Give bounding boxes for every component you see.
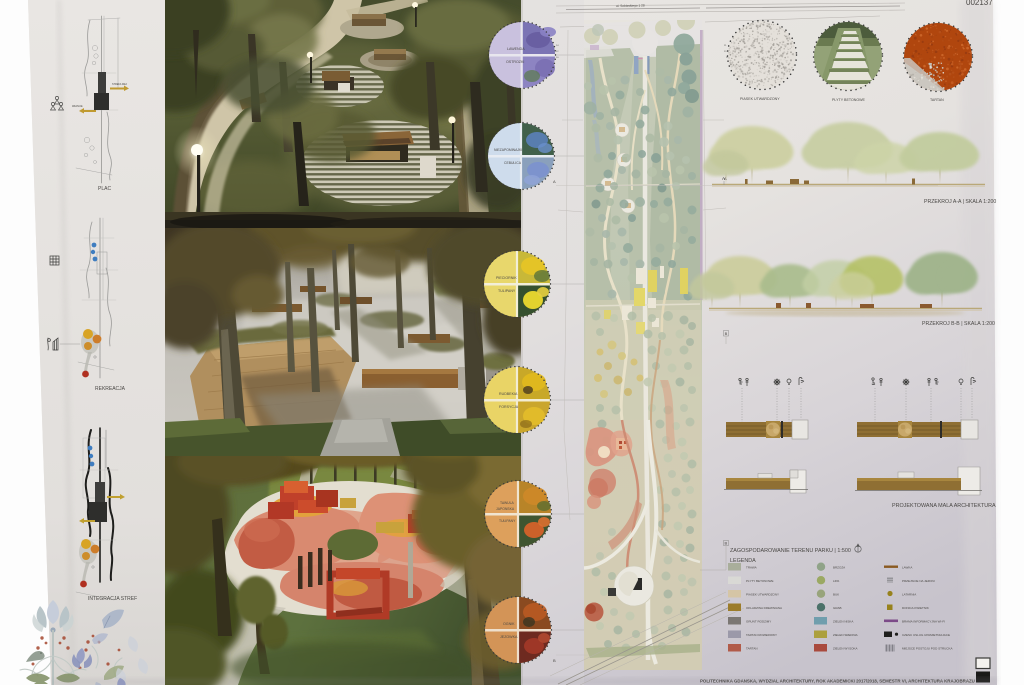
- svg-text:ZIELEN WYSOKA: ZIELEN WYSOKA: [833, 647, 858, 651]
- svg-text:MIEJSCE POSTOJU POD STRUCKA: MIEJSCE POSTOJU POD STRUCKA: [902, 647, 952, 651]
- svg-text:BUK: BUK: [833, 593, 839, 597]
- svg-text:TARTAN: TARTAN: [930, 98, 944, 102]
- svg-text:ZAGOSPODAROWANIE TERENU PARKU: ZAGOSPODAROWANIE TERENU PARKU | 1:500: [730, 548, 851, 554]
- svg-text:PIASEK UTWARDZONY: PIASEK UTWARDZONY: [740, 97, 780, 101]
- svg-text:WEJSCIE: WEJSCIE: [72, 105, 83, 108]
- svg-text:TULIPANY: TULIPANY: [498, 289, 516, 293]
- svg-text:TRAWA: TRAWA: [746, 566, 757, 570]
- svg-text:B: B: [553, 658, 556, 663]
- svg-text:PROJEKTOWANA MALA ARCHITEKTURA: PROJEKTOWANA MALA ARCHITEKTURA: [892, 503, 996, 509]
- svg-text:OKLADZINA DREWNIANA: OKLADZINA DREWNIANA: [746, 606, 782, 610]
- svg-text:PLYTY BETONOWE: PLYTY BETONOWE: [832, 98, 866, 102]
- svg-text:OGNIK: OGNIK: [503, 622, 515, 626]
- svg-text:LATARNIA: LATARNIA: [902, 593, 916, 597]
- svg-text:TULIPANY: TULIPANY: [499, 519, 516, 523]
- svg-text:JAPONSKA: JAPONSKA: [496, 507, 515, 511]
- svg-text:PLYTY BETONOWE: PLYTY BETONOWE: [746, 579, 774, 583]
- svg-text:A: A: [722, 176, 725, 181]
- svg-text:PRZEJSCIE NA JEZDNI: PRZEJSCIE NA JEZDNI: [902, 579, 935, 583]
- svg-text:LAWENDA: LAWENDA: [507, 47, 525, 51]
- svg-text:GRAB: GRAB: [833, 606, 842, 610]
- svg-text:CEBULICA: CEBULICA: [504, 161, 522, 165]
- svg-text:FORSYCJA: FORSYCJA: [499, 405, 519, 409]
- svg-text:INTEGRACJA STREF: INTEGRACJA STREF: [88, 596, 137, 602]
- svg-text:BRZOZA: BRZOZA: [833, 566, 845, 570]
- svg-text:OSTROZKI: OSTROZKI: [506, 60, 524, 64]
- svg-text:PIASEK UTWARDZONY: PIASEK UTWARDZONY: [746, 593, 779, 597]
- svg-text:TARTAN ROWEROWY: TARTAN ROWEROWY: [746, 633, 777, 637]
- svg-text:BRAMA INFORMACYJNA WI-FI: BRAMA INFORMACYJNA WI-FI: [902, 620, 945, 624]
- svg-text:DONICA KWIETNIK: DONICA KWIETNIK: [902, 606, 929, 610]
- svg-text:GRUNT RODZIMY: GRUNT RODZIMY: [746, 620, 771, 624]
- svg-text:PRZEKROJ B-B | SKALA 1:200: PRZEKROJ B-B | SKALA 1:200: [922, 321, 995, 327]
- svg-text:ZIELEN SREDNIA: ZIELEN SREDNIA: [833, 633, 858, 637]
- svg-text:PIECIORNIK: PIECIORNIK: [496, 276, 517, 280]
- svg-text:JEZOWKA: JEZOWKA: [500, 635, 518, 639]
- svg-text:B: B: [725, 331, 728, 336]
- svg-text:LAWKA: LAWKA: [902, 566, 912, 570]
- svg-text:STREFA WEJ: STREFA WEJ: [112, 83, 128, 86]
- svg-text:TAWULA: TAWULA: [500, 501, 514, 505]
- svg-text:ul. Sobieskiego 1 28: ul. Sobieskiego 1 28: [616, 3, 645, 8]
- svg-text:PRZEKROJ A-A | SKALA 1:200: PRZEKROJ A-A | SKALA 1:200: [924, 199, 996, 205]
- svg-text:ZIELEN NISKA: ZIELEN NISKA: [833, 620, 853, 624]
- svg-text:RUDBEKIA: RUDBEKIA: [499, 392, 518, 396]
- svg-text:TARTAN: TARTAN: [746, 647, 758, 651]
- svg-text:LIPA: LIPA: [833, 579, 839, 583]
- svg-text:A: A: [553, 179, 556, 184]
- svg-text:002137: 002137: [966, 0, 993, 7]
- svg-text:NIEZAPOMINAJKI: NIEZAPOMINAJKI: [494, 148, 522, 152]
- svg-text:CZESC USLUG UPAMIETNIAJACE: CZESC USLUG UPAMIETNIAJACE: [902, 633, 950, 637]
- svg-text:REKREACJA: REKREACJA: [95, 386, 126, 392]
- svg-text:PLAC: PLAC: [98, 186, 111, 192]
- svg-text:B: B: [725, 541, 728, 546]
